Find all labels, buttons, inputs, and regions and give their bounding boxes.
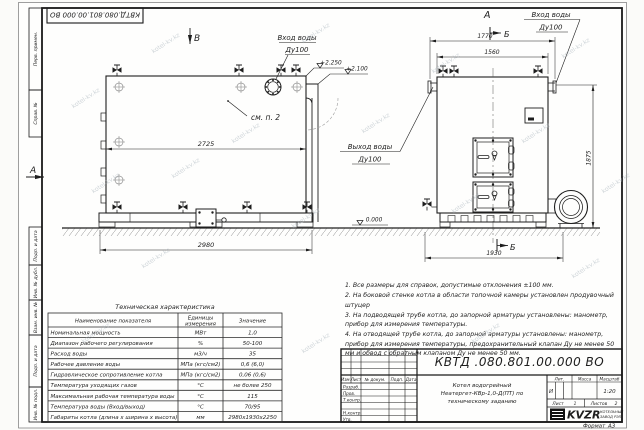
- left-cell-podp-data-2: Подп. и дата: [33, 345, 39, 376]
- tb-header-list: Лист: [350, 377, 362, 382]
- tb-scale-header: Масштаб: [600, 377, 620, 382]
- inlet-dn-label: Ду100: [285, 46, 310, 54]
- tech-table-title: Техническая характеристика: [115, 303, 214, 311]
- tech-row-name: Гидравлическое сопротивление котла: [51, 373, 164, 379]
- level-top-label: +2.250: [320, 61, 342, 67]
- level-zero-label: 0.000: [366, 218, 383, 224]
- tb-sig-prov: Пров.: [343, 391, 355, 396]
- tb-header-izm: Изм.: [341, 377, 351, 382]
- tech-row-name: Температура уходящих газов: [51, 383, 137, 389]
- tb-lit-header: Лит.: [554, 377, 565, 382]
- inlet-water-label: Вход воды: [277, 34, 317, 42]
- tb-sig-razrab: Разраб.: [343, 385, 359, 390]
- tb-sheets-value: 2: [615, 401, 618, 407]
- left-cell-podp-data-1: Подп. и дата: [33, 230, 39, 261]
- tech-row-value: 70/95: [245, 404, 261, 410]
- tech-row-value: 0,06 (0,6): [239, 373, 266, 379]
- tech-row-name: Температура воды (Вход/выход): [51, 404, 146, 410]
- tech-row-unit: °С: [197, 404, 204, 410]
- format-value: А3: [607, 424, 616, 430]
- tb-sheet-value: 1: [574, 401, 577, 407]
- view-a-label: А: [483, 10, 491, 21]
- inlet-water-label-2: Вход воды: [531, 11, 571, 19]
- tech-row-name: Расход воды: [51, 352, 88, 358]
- note-item-1: 1. Все размеры для справок, допустимые о…: [345, 281, 619, 290]
- note-item-2: 2. На боковой стенке котла в области топ…: [345, 291, 619, 310]
- tb-header-podp: Подп.: [391, 377, 404, 382]
- outlet-dn-label: Ду100: [358, 156, 383, 164]
- notes-block: 1. Все размеры для справок, допустимые о…: [345, 281, 619, 359]
- tech-row-value: 2980х1930х2250: [228, 415, 277, 421]
- dim-front-base: 1930: [486, 250, 501, 257]
- tech-header-name: Наименование показателя: [75, 319, 152, 325]
- see-note-label: см. п. 2: [251, 113, 280, 122]
- dim-height: 1875: [586, 150, 593, 165]
- tb-sig-utv: Утв.: [343, 417, 352, 422]
- tech-row-unit: м3/ч: [194, 352, 208, 358]
- tech-row-unit: °С: [197, 383, 204, 389]
- tb-header-data: Дата: [405, 377, 417, 382]
- dim-front-inner: 1560: [484, 49, 499, 56]
- kvzr-logo-caption-1: КОТЕЛЬНЫЙ: [600, 409, 624, 414]
- tech-row-value: 0,6 (6,0): [241, 362, 265, 368]
- tb-sheet-label: Лист: [551, 401, 564, 407]
- tech-header-unit-2: измерения: [185, 322, 217, 328]
- tech-row-value: 50-100: [243, 341, 263, 347]
- doc-number-stamp-text: КВТД.080.801.00.000 ВО: [50, 11, 140, 19]
- tech-row-unit: °С: [197, 394, 204, 400]
- tech-row-value: не более 250: [233, 383, 272, 389]
- drawing-canvas: КВТД.080.801.00.000 ВО Перв. примен. Спр…: [0, 0, 644, 430]
- tech-row-name: Рабочее давление воды: [51, 362, 121, 368]
- tech-header-value: Значение: [239, 319, 267, 325]
- ground-line: [62, 228, 600, 236]
- left-cell-inv-podl: Инв. № подл.: [33, 389, 39, 421]
- tech-row-unit: мм: [196, 415, 204, 421]
- tb-mass-header: Масса: [578, 377, 592, 382]
- tech-row-unit: МВт: [195, 331, 208, 337]
- tb-header-dokum: № докум.: [364, 377, 386, 382]
- outlet-water-label: Выход воды: [348, 143, 393, 151]
- tech-row-name: Диапазон рабочего регулирования: [50, 341, 154, 347]
- dim-side-inner: 2725: [198, 140, 215, 148]
- note-item-3: 3. На подводящей трубе котла, до запорно…: [345, 311, 619, 330]
- note-item-4: 4. На отводящей трубе котла, до запорной…: [345, 330, 619, 358]
- section-b-top-label: Б: [504, 30, 510, 39]
- tech-row-value: 35: [249, 352, 256, 358]
- view-a-side-label: А: [29, 166, 36, 176]
- view-b-label: В: [194, 34, 200, 44]
- tb-sig-nkontr: Н.контр.: [343, 411, 362, 416]
- tech-row-unit: %: [198, 341, 203, 347]
- left-cell-perv-primen: Перв. примен.: [33, 32, 39, 67]
- format-label: Формат: [583, 424, 606, 430]
- left-cell-vzam-inv: Взам. инв. №: [33, 302, 39, 333]
- tech-row-name: Номинальная мощность: [51, 331, 121, 337]
- drawing-sheet: КВТД.080.801.00.000 ВО Перв. примен. Спр…: [0, 0, 644, 430]
- tech-row-unit: МПа (кгс/см2): [180, 362, 220, 368]
- tech-row-value: 115: [247, 394, 258, 400]
- tech-row-name: Габариты котла (длина х ширина х высота): [51, 415, 178, 421]
- inlet-dn-label-2: Ду100: [539, 24, 564, 32]
- left-cell-inv-dubl: Инв. № дубл.: [33, 267, 39, 298]
- tb-sheets-label: Листов: [590, 401, 608, 407]
- left-cell-sprav-no: Справ. №: [33, 102, 39, 125]
- kvzr-logo-text: KVZR: [567, 409, 600, 422]
- tb-name-line-1: Котел водогрейный: [453, 383, 512, 389]
- tb-scale-value: 1:20: [603, 389, 616, 395]
- section-b-bottom-label: Б: [510, 243, 516, 252]
- dim-side-length: 2980: [198, 241, 215, 249]
- tech-row-value: 1,0: [248, 331, 257, 337]
- tech-row-unit: МПа (кгс/см2): [180, 373, 220, 379]
- tech-row-name: Максимальная рабочая температура воды: [51, 394, 176, 400]
- tb-name-line-2: Неатергет-КВр-1,0-Д(ПТ) по: [441, 391, 524, 397]
- tb-lit-value: И: [549, 389, 553, 395]
- kvzr-logo-caption-2: ЗАВОД РЭП: [600, 415, 622, 419]
- level-mid-label: +2.100: [346, 67, 368, 73]
- tb-name-line-3: техническому заданию: [448, 399, 517, 405]
- tb-sig-tkontr: Т.контр.: [343, 398, 361, 403]
